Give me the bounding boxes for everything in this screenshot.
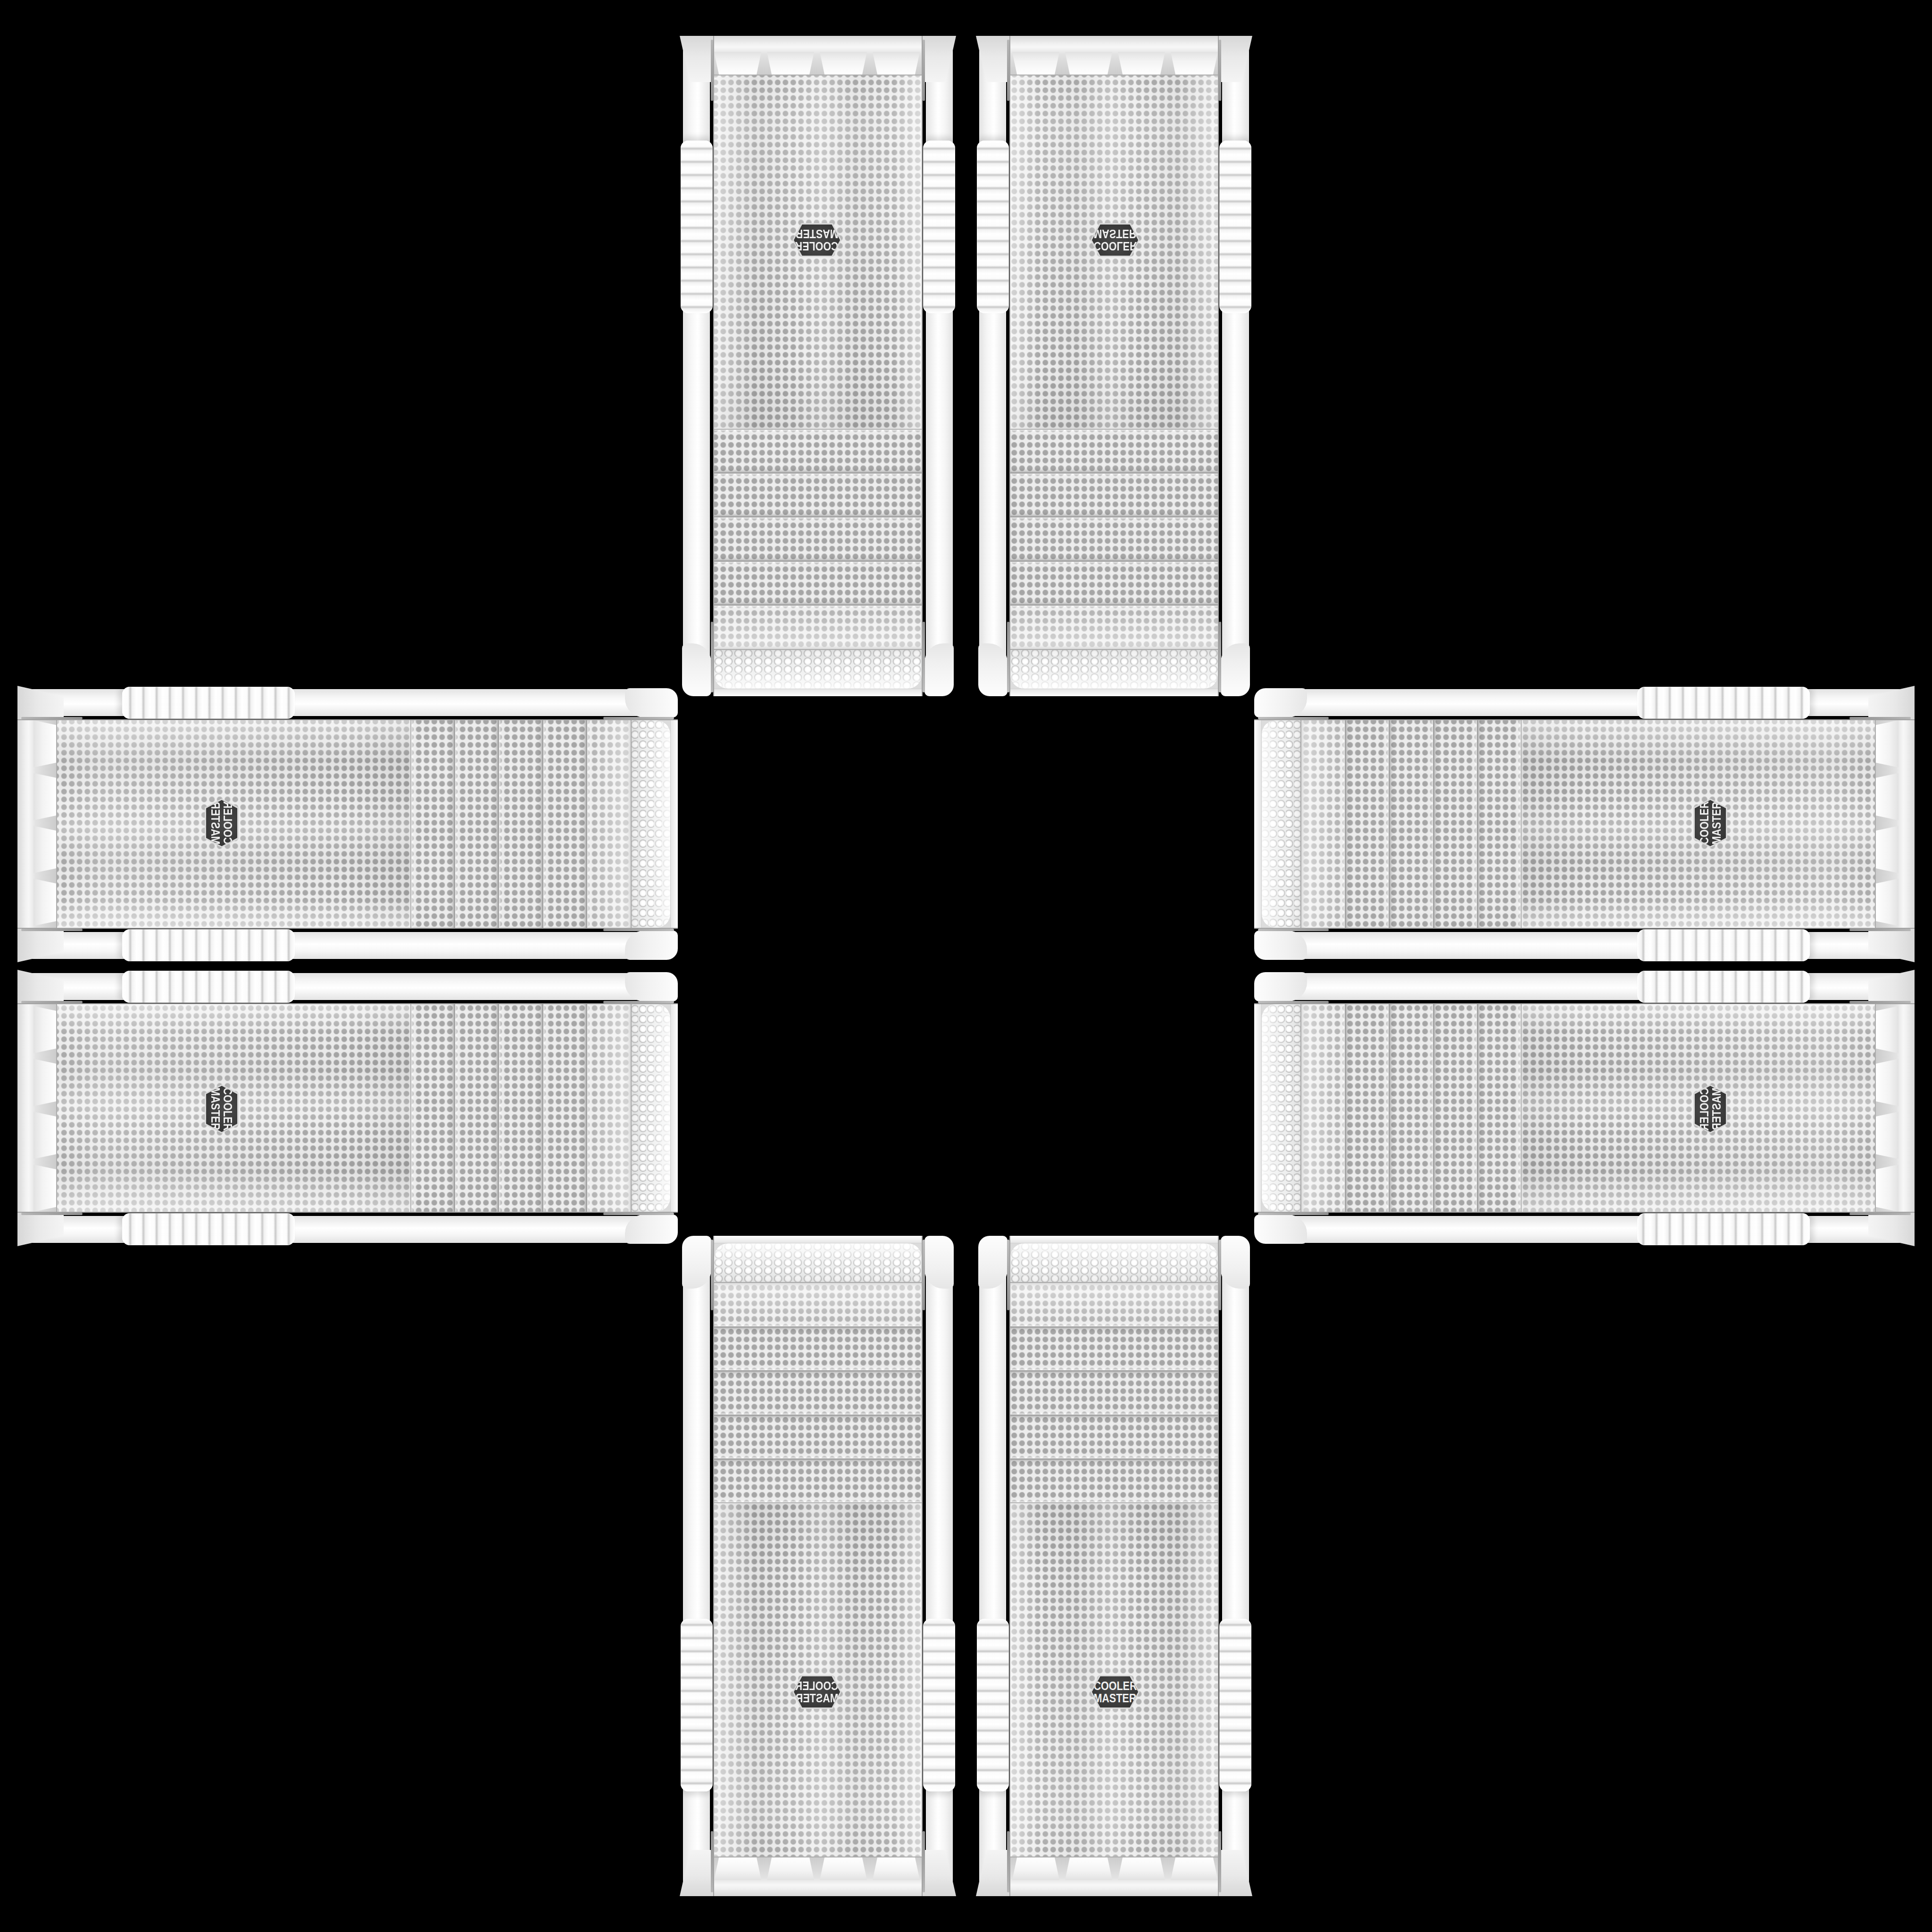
rail-top-horn (625, 931, 678, 960)
drive-bay-cover (1010, 1326, 1218, 1370)
drive-bay-covers (1302, 720, 1521, 928)
rail-body (926, 1241, 953, 1891)
case-foot (33, 720, 56, 767)
chrome-accent-icon (1849, 929, 1911, 931)
drive-bay-cover (455, 720, 499, 928)
front-top-band (714, 1236, 922, 1243)
case-foot (33, 1165, 56, 1212)
rail-grip-ribs (1637, 971, 1810, 1003)
badge-brand-line1: COOLER (1093, 240, 1137, 252)
case-foot (1876, 1112, 1899, 1159)
drive-bay-cover (455, 1004, 499, 1212)
rail-grip-ribs (681, 1619, 713, 1791)
case-front-panel: COOLER MASTER (1254, 719, 1915, 929)
drive-bay-cover (714, 1458, 922, 1502)
rail-top-horn (1254, 972, 1307, 1001)
rail-body (1259, 932, 1910, 959)
drive-bay-cover (1477, 720, 1521, 928)
cooler-master-logo-icon: COOLER MASTER (1693, 1086, 1727, 1132)
case-foot (1876, 720, 1899, 767)
badge-brand-line1: COOLER (1698, 801, 1710, 845)
front-top-band (670, 720, 678, 928)
case-left-rail (17, 972, 678, 1003)
rail-top-horn (1254, 931, 1307, 960)
case-foot (1876, 773, 1899, 820)
badge-brand-line2: MASTER (1710, 802, 1723, 845)
drive-bay-cover (1010, 562, 1218, 606)
case-foot (1012, 52, 1059, 75)
drive-bay-cover (1345, 720, 1389, 928)
case-right-rail (1219, 36, 1250, 696)
rail-grip-ribs (977, 1619, 1009, 1791)
chrome-accent-icon (1849, 1213, 1911, 1215)
cooler-master-badge: COOLER MASTER (1091, 1674, 1140, 1710)
rail-grip-ribs (122, 971, 295, 1003)
drive-bay-covers (1010, 1284, 1218, 1502)
case-foot (33, 879, 56, 926)
cooler-master-badge: COOLER MASTER (203, 799, 240, 848)
case-front-panel: COOLER MASTER (1009, 1236, 1219, 1896)
rail-body (22, 689, 673, 716)
rail-top-horn (924, 643, 954, 696)
rail-body (1259, 973, 1910, 1000)
cooler-master-logo-icon: COOLER MASTER (205, 800, 239, 846)
case-foot (767, 1857, 814, 1880)
case-left-rail (978, 1236, 1009, 1896)
cooler-master-logo-icon: COOLER MASTER (794, 1675, 840, 1709)
case-right-rail (17, 688, 678, 719)
drive-bay-cover (543, 720, 587, 928)
drive-bay-cover (1010, 430, 1218, 474)
case-front-panel: COOLER MASTER (713, 1236, 923, 1896)
front-top-band (714, 689, 922, 696)
rail-grip-ribs (1637, 929, 1810, 961)
case-foot (1171, 52, 1218, 75)
rail-top-horn (625, 1215, 678, 1244)
chrome-accent-icon (1219, 622, 1221, 692)
case-foot (33, 1006, 56, 1053)
rail-body (1222, 1241, 1249, 1891)
case-right-rail (17, 1213, 678, 1244)
drive-bay-cover (1010, 517, 1218, 561)
case-right-rail (1219, 1236, 1250, 1896)
case-front-panel: COOLER MASTER (1254, 1003, 1915, 1213)
cooler-master-logo-icon: COOLER MASTER (1092, 1675, 1138, 1709)
case-foot (714, 52, 761, 75)
chrome-accent-icon (1219, 40, 1221, 101)
badge-brand-line2: MASTER (209, 1088, 222, 1131)
drive-bay-cover (1010, 474, 1218, 517)
rail-grip-ribs (1637, 687, 1810, 719)
chrome-accent-icon (603, 929, 674, 931)
case-foot (873, 52, 920, 75)
drive-bay-cover (1302, 1004, 1345, 1212)
drive-bay-cover (499, 720, 543, 928)
case-right-rail (1254, 688, 1915, 719)
case-left-rail (17, 929, 678, 960)
front-top-band (1010, 689, 1218, 696)
front-curved-bump-mesh (1262, 720, 1301, 928)
cooler-master-badge: COOLER MASTER (1091, 222, 1140, 258)
rail-body (1222, 41, 1249, 691)
drive-bay-cover (1010, 1458, 1218, 1502)
rail-body (683, 1241, 710, 1891)
pc-case-left-top: COOLER MASTER (17, 688, 678, 960)
chrome-accent-icon (1219, 1240, 1221, 1310)
pc-case-bottom-left: COOLER MASTER (682, 1236, 954, 1896)
cooler-master-badge: COOLER MASTER (1692, 799, 1729, 848)
drive-bay-cover (714, 474, 922, 517)
rail-top-horn (682, 1236, 711, 1289)
case-foot (33, 773, 56, 820)
case-foot (1171, 1857, 1218, 1880)
case-foot (1065, 1857, 1112, 1880)
drive-bay-cover (714, 430, 922, 474)
drive-bay-cover (1302, 720, 1345, 928)
front-curved-bump-mesh (714, 1243, 922, 1283)
case-foot (1065, 52, 1112, 75)
front-curved-bump-mesh (1010, 1243, 1218, 1283)
rail-body (22, 932, 673, 959)
rail-top-horn (1254, 1215, 1307, 1244)
rail-top-horn (978, 643, 1008, 696)
cooler-master-badge: COOLER MASTER (203, 1084, 240, 1133)
case-foot (873, 1857, 920, 1880)
case-front-panel: COOLER MASTER (17, 719, 678, 929)
rail-grip-ribs (1637, 1213, 1810, 1245)
bottom-cap (17, 1004, 57, 1212)
rail-grip-ribs (1219, 1619, 1251, 1791)
front-curved-bump-mesh (1010, 649, 1218, 689)
front-top-band (1254, 1004, 1262, 1212)
case-foot (33, 1059, 56, 1106)
bottom-cap (17, 720, 57, 928)
case-left-rail (1254, 972, 1915, 1003)
front-curved-bump-mesh (1262, 1004, 1301, 1212)
case-foot (820, 52, 867, 75)
front-curved-bump-mesh (714, 649, 922, 689)
pc-case-bottom-right: COOLER MASTER (978, 1236, 1250, 1896)
drive-bay-cover (587, 1004, 630, 1212)
bottom-cap (1010, 1857, 1218, 1896)
case-front-panel: COOLER MASTER (1009, 36, 1219, 696)
case-foot (1012, 1857, 1059, 1880)
chrome-accent-icon (923, 622, 925, 692)
drive-bay-covers (1010, 430, 1218, 648)
drive-bay-covers (411, 1004, 630, 1212)
case-front-panel: COOLER MASTER (713, 36, 923, 696)
cooler-master-badge: COOLER MASTER (792, 1674, 841, 1710)
rail-top-horn (1221, 643, 1250, 696)
case-foot (1876, 1059, 1899, 1106)
drive-bay-cover (411, 720, 455, 928)
chrome-accent-icon (1219, 1831, 1221, 1892)
pc-case-top-right: COOLER MASTER (978, 36, 1250, 696)
case-foot (33, 826, 56, 873)
drive-bay-cover (1010, 606, 1218, 648)
pc-case-top-left: COOLER MASTER (682, 36, 954, 696)
rail-body (979, 1241, 1006, 1891)
bottom-cap (714, 36, 922, 75)
badge-brand-line2: MASTER (1094, 1692, 1137, 1704)
badge-brand-line2: MASTER (209, 802, 222, 845)
chrome-accent-icon (21, 929, 83, 931)
front-top-band (1254, 720, 1262, 928)
bottom-cap (714, 1857, 922, 1896)
drive-bay-covers (714, 1284, 922, 1502)
drive-bay-cover (1389, 1004, 1432, 1212)
pc-case-right-top: COOLER MASTER (1254, 688, 1915, 960)
chrome-accent-icon (1258, 929, 1329, 931)
rail-top-horn (978, 1236, 1008, 1289)
chrome-accent-icon (21, 1213, 83, 1215)
drive-bay-cover (1433, 720, 1477, 928)
drive-bay-covers (411, 720, 630, 928)
case-left-rail (1254, 929, 1915, 960)
chrome-accent-icon (1258, 1213, 1329, 1215)
case-foot (767, 52, 814, 75)
case-right-rail (682, 36, 713, 696)
drive-bay-cover (714, 606, 922, 648)
rail-top-horn (682, 643, 711, 696)
pc-case-left-bottom: COOLER MASTER (17, 972, 678, 1244)
drive-bay-cover (543, 1004, 587, 1212)
rail-body (1259, 1216, 1910, 1243)
drive-bay-cover (411, 1004, 455, 1212)
drive-bay-cover (714, 1284, 922, 1326)
drive-bay-covers (714, 430, 922, 648)
rail-top-horn (625, 972, 678, 1001)
front-curved-bump-mesh (631, 720, 670, 928)
case-foot (1876, 879, 1899, 926)
cooler-master-logo-icon: COOLER MASTER (1693, 800, 1727, 846)
drive-bay-cover (714, 1326, 922, 1370)
rail-body (926, 41, 953, 691)
cooler-master-logo-icon: COOLER MASTER (205, 1086, 239, 1132)
rail-grip-ribs (977, 141, 1009, 313)
chrome-accent-icon (923, 40, 925, 101)
badge-brand-line1: COOLER (795, 240, 839, 252)
case-foot (1876, 826, 1899, 873)
drive-bay-cover (714, 1370, 922, 1414)
badge-brand-line1: COOLER (795, 1680, 839, 1692)
drive-bay-cover (1389, 720, 1432, 928)
case-foot (33, 1112, 56, 1159)
bottom-cap (1010, 36, 1218, 75)
badge-brand-line1: COOLER (1093, 1680, 1137, 1692)
badge-brand-line2: MASTER (1094, 228, 1137, 240)
rail-grip-ribs (122, 687, 295, 719)
front-top-band (1010, 1236, 1218, 1243)
rail-grip-ribs (122, 929, 295, 961)
drive-bay-cover (587, 720, 630, 928)
drive-bay-cover (1433, 1004, 1477, 1212)
drive-bay-cover (1010, 1284, 1218, 1326)
case-foot (714, 1857, 761, 1880)
product-collage: COOLER MASTER (0, 0, 1932, 1932)
rail-body (683, 41, 710, 691)
bottom-cap (1875, 1004, 1915, 1212)
badge-brand-line1: COOLER (1698, 1087, 1710, 1131)
cooler-master-logo-icon: COOLER MASTER (1092, 223, 1138, 257)
rail-body (22, 1216, 673, 1243)
drive-bay-cover (1010, 1415, 1218, 1458)
case-left-rail (923, 36, 954, 696)
front-top-band (670, 1004, 678, 1212)
drive-bay-cover (714, 1415, 922, 1458)
case-front-panel: COOLER MASTER (17, 1003, 678, 1213)
bottom-cap (1875, 720, 1915, 928)
case-foot (1118, 52, 1165, 75)
drive-bay-cover (499, 1004, 543, 1212)
chrome-accent-icon (603, 1213, 674, 1215)
cooler-master-badge: COOLER MASTER (792, 222, 841, 258)
case-foot (1876, 1006, 1899, 1053)
drive-bay-covers (1302, 1004, 1521, 1212)
rail-grip-ribs (1219, 141, 1251, 313)
rail-grip-ribs (122, 1213, 295, 1245)
case-right-rail (1254, 1213, 1915, 1244)
drive-bay-cover (1477, 1004, 1521, 1212)
rail-top-horn (625, 688, 678, 717)
cooler-master-logo-icon: COOLER MASTER (794, 223, 840, 257)
pc-case-right-bottom: COOLER MASTER (1254, 972, 1915, 1244)
rail-top-horn (924, 1236, 954, 1289)
drive-bay-cover (1345, 1004, 1389, 1212)
rail-grip-ribs (681, 141, 713, 313)
chrome-accent-icon (923, 1240, 925, 1310)
badge-brand-line2: MASTER (1710, 1088, 1723, 1131)
case-right-rail (682, 1236, 713, 1896)
case-left-rail (923, 1236, 954, 1896)
rail-body (1259, 689, 1910, 716)
badge-brand-line1: COOLER (222, 1087, 234, 1131)
drive-bay-cover (1010, 1370, 1218, 1414)
case-foot (820, 1857, 867, 1880)
case-foot (1118, 1857, 1165, 1880)
badge-brand-line2: MASTER (796, 228, 839, 240)
cooler-master-badge: COOLER MASTER (1692, 1084, 1729, 1133)
case-foot (1876, 1165, 1899, 1212)
chrome-accent-icon (923, 1831, 925, 1892)
drive-bay-cover (714, 517, 922, 561)
drive-bay-cover (714, 562, 922, 606)
rail-top-horn (1254, 688, 1307, 717)
rail-body (22, 973, 673, 1000)
badge-brand-line2: MASTER (796, 1692, 839, 1704)
badge-brand-line1: COOLER (222, 801, 234, 845)
case-left-rail (978, 36, 1009, 696)
rail-top-horn (1221, 1236, 1250, 1289)
rail-grip-ribs (923, 1619, 955, 1791)
rail-body (979, 41, 1006, 691)
front-curved-bump-mesh (631, 1004, 670, 1212)
rail-grip-ribs (923, 141, 955, 313)
